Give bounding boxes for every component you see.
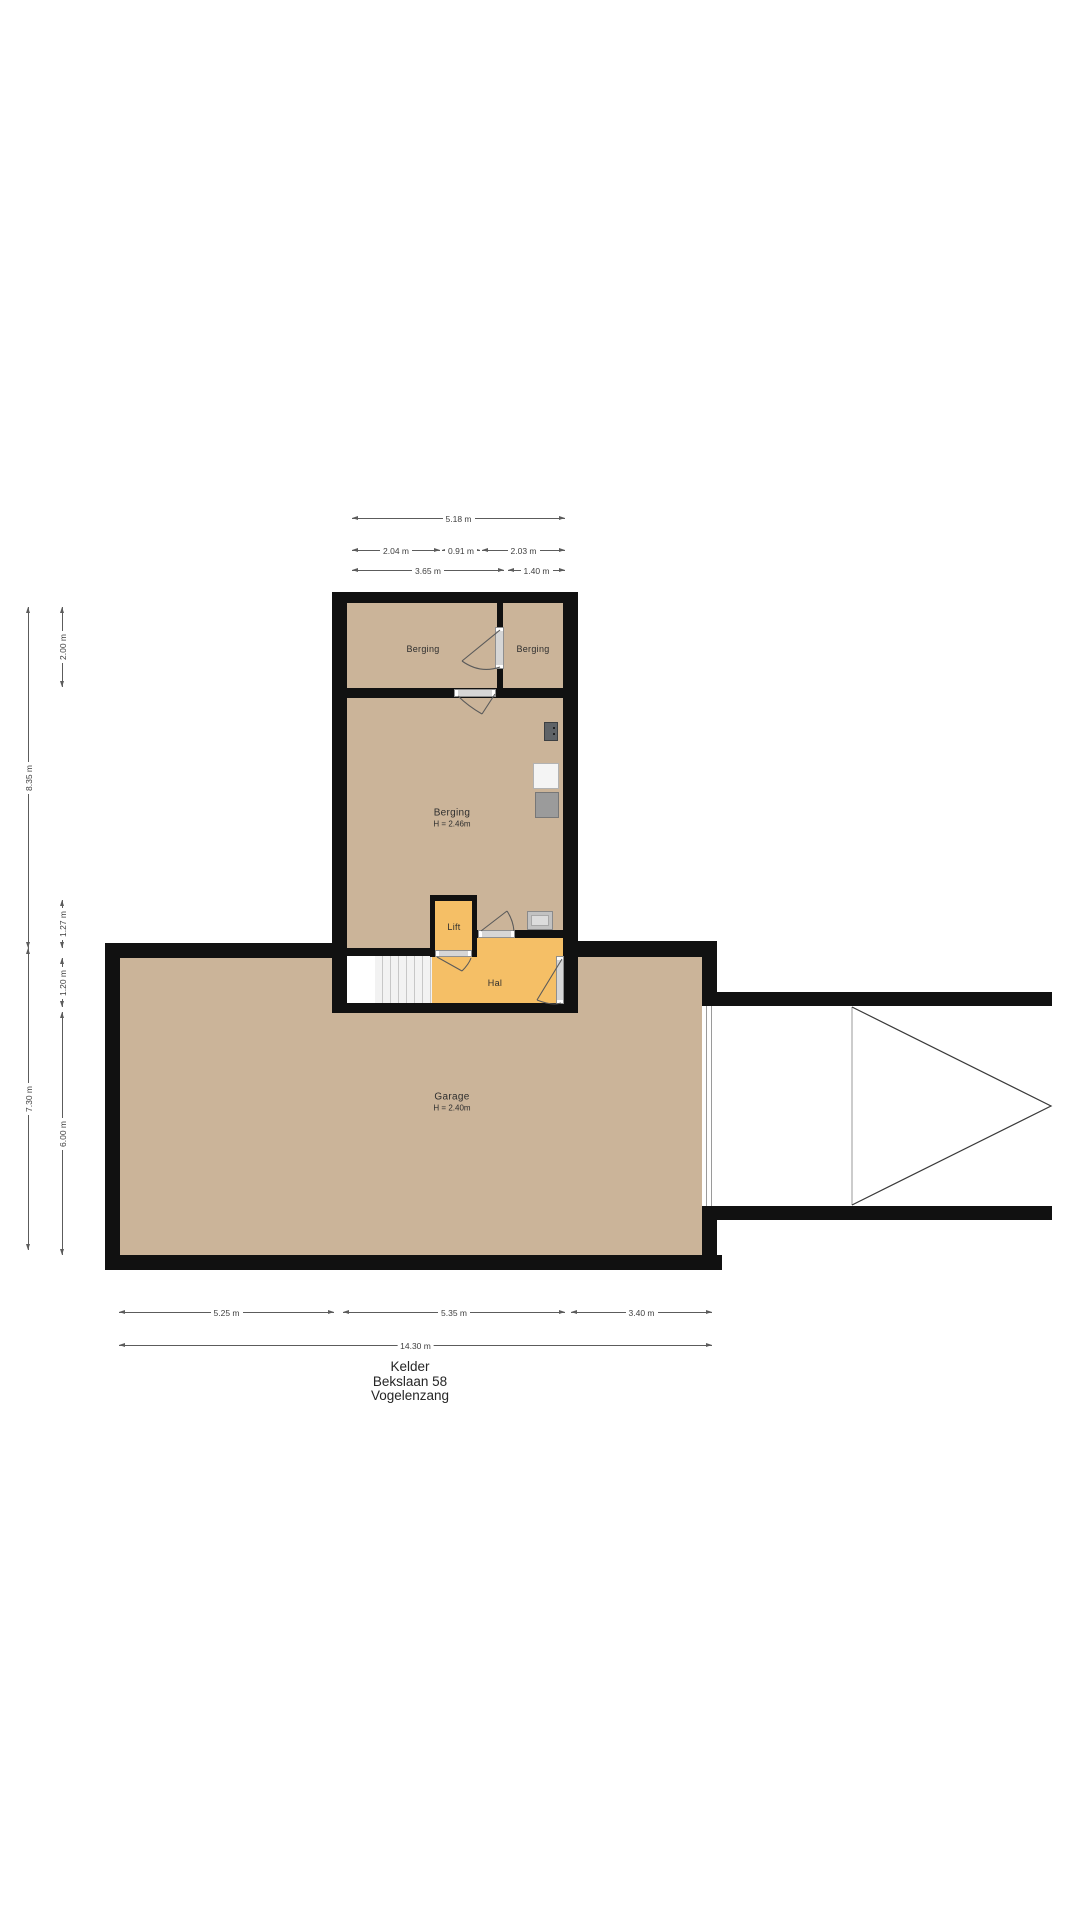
dimension-left-835: 8.35 m <box>28 607 29 948</box>
dimension-label: 3.65 m <box>412 566 444 576</box>
arrowhead <box>559 568 565 572</box>
arrowhead <box>559 548 565 552</box>
arrowhead <box>26 607 30 613</box>
garage-wall-bottom <box>105 1255 722 1270</box>
arrowhead <box>60 1249 64 1255</box>
arrowhead <box>26 948 30 954</box>
room-hal-floor-under-lift <box>432 956 477 1003</box>
garage-wall-top-right <box>578 941 717 957</box>
dimension-top-140: 1.40 m <box>508 570 565 571</box>
dimension-label: 5.18 m <box>443 514 475 524</box>
dimension-label: 5.25 m <box>211 1308 243 1318</box>
dimension-left-127: 1.27 m <box>62 900 63 948</box>
arrowhead <box>706 1343 712 1347</box>
dimension-left-200: 2.00 m <box>62 607 63 687</box>
arrowhead <box>26 1244 30 1250</box>
staircase <box>375 956 432 1003</box>
driveway-arrow <box>852 1007 1051 1205</box>
dimension-label: 0.91 m <box>445 546 477 556</box>
arrowhead <box>559 516 565 520</box>
room-hal-floor <box>477 938 563 1003</box>
arrowhead <box>119 1343 125 1347</box>
room-garage-floor-mid <box>332 1013 578 1255</box>
room-label-berging-top-right: Berging <box>516 644 549 654</box>
arrowhead <box>328 1310 334 1314</box>
room-height: H = 2.40m <box>433 1104 470 1113</box>
room-label-berging-top-left: Berging <box>406 644 439 654</box>
address-street: Bekslaan 58 <box>371 1375 449 1390</box>
room-name: Berging <box>406 644 439 654</box>
dimension-label: 6.00 m <box>58 1118 68 1150</box>
arrowhead <box>559 1310 565 1314</box>
arrowhead <box>508 568 514 572</box>
arrowhead <box>60 900 64 906</box>
arrowhead <box>60 958 64 964</box>
room-label-hal: Hal <box>488 978 502 988</box>
dimension-left-600: 6.00 m <box>62 1012 63 1255</box>
dimension-bottom-535: 5.35 m <box>343 1312 565 1313</box>
dimension-top-091: 0.91 m <box>442 550 480 551</box>
room-name: Hal <box>488 978 502 988</box>
hal-exterior-door-panel <box>556 956 564 1004</box>
arrowhead <box>498 568 504 572</box>
dimension-label: 7.30 m <box>24 1083 34 1115</box>
dimension-bottom-340: 3.40 m <box>571 1312 712 1313</box>
dimension-label: 3.40 m <box>626 1308 658 1318</box>
dimension-label: 1.27 m <box>58 908 68 940</box>
arrowhead <box>352 568 358 572</box>
room-label-garage: Garage H = 2.40m <box>433 1092 470 1113</box>
appliance-box <box>535 792 559 818</box>
dimension-label: 2.04 m <box>380 546 412 556</box>
arrowhead <box>482 548 488 552</box>
arrowhead <box>60 681 64 687</box>
dimension-left-120: 1.20 m <box>62 958 63 1007</box>
dimension-top-518: 5.18 m <box>352 518 565 519</box>
arrowhead <box>60 942 64 948</box>
dimension-label: 2.00 m <box>58 631 68 663</box>
arrowhead <box>60 1001 64 1007</box>
dimension-label: 1.20 m <box>58 967 68 999</box>
room-name: Berging <box>433 808 470 819</box>
driveway-wall-bottom <box>717 1206 1052 1220</box>
meter-box-dot <box>553 727 555 729</box>
dimension-top-365: 3.65 m <box>352 570 504 571</box>
arrowhead <box>343 1310 349 1314</box>
arrowhead <box>119 1310 125 1314</box>
garage-wall-top-left <box>105 943 337 958</box>
driveway-wall-top <box>717 992 1052 1006</box>
berging-divider-door-threshold <box>454 689 496 697</box>
hal-berging-door-threshold <box>478 930 515 938</box>
arrowhead <box>60 1012 64 1018</box>
dimension-bottom-1430: 14.30 m <box>119 1345 712 1346</box>
arrowhead <box>571 1310 577 1314</box>
stair-landing <box>347 956 375 1003</box>
room-label-lift: Lift <box>447 922 460 932</box>
dimension-label: 5.35 m <box>438 1308 470 1318</box>
meter-box-dot <box>553 733 555 735</box>
meter-box <box>544 722 558 741</box>
room-name: Lift <box>447 922 460 932</box>
room-garage-floor-right <box>578 957 702 1255</box>
room-name: Garage <box>433 1092 470 1103</box>
room-label-berging-main: Berging H = 2.46m <box>433 808 470 829</box>
floor-title: Kelder <box>371 1360 449 1375</box>
room-name: Berging <box>516 644 549 654</box>
garage-wall-right-upper <box>702 941 717 1006</box>
floorplan-canvas: Berging Berging Berging H = 2.46m Lift H… <box>0 0 1080 1920</box>
berging-top-door-panel <box>495 627 504 669</box>
dimension-top-203: 2.03 m <box>482 550 565 551</box>
dimension-left-730: 7.30 m <box>28 948 29 1250</box>
dimension-bottom-525: 5.25 m <box>119 1312 334 1313</box>
address-city: Vogelenzang <box>371 1389 449 1404</box>
arrowhead <box>352 548 358 552</box>
arrowhead <box>706 1310 712 1314</box>
arrowhead <box>434 548 440 552</box>
garage-door <box>706 1006 712 1206</box>
dimension-label: 14.30 m <box>397 1341 434 1351</box>
room-garage-floor-left <box>120 958 332 1255</box>
title-block: Kelder Bekslaan 58 Vogelenzang <box>371 1360 449 1404</box>
sink <box>527 911 553 930</box>
dimension-label: 2.03 m <box>508 546 540 556</box>
garage-wall-left <box>105 943 120 1270</box>
arrowhead <box>352 516 358 520</box>
dimension-label: 1.40 m <box>521 566 553 576</box>
cabinet-box <box>533 763 559 789</box>
room-height: H = 2.46m <box>433 820 470 829</box>
dimension-label: 8.35 m <box>24 762 34 794</box>
lift-door-threshold <box>435 950 472 957</box>
sink-basin <box>531 915 549 926</box>
arrowhead <box>60 607 64 613</box>
dimension-top-204: 2.04 m <box>352 550 440 551</box>
